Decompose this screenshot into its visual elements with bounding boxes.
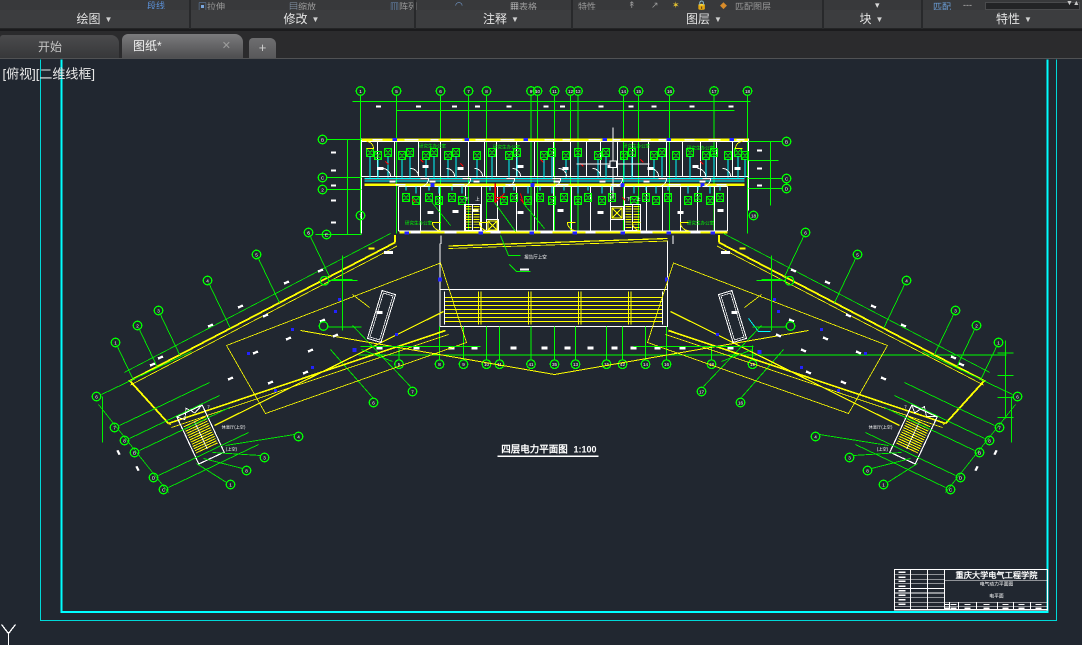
svg-text:休息厅(上空): 休息厅(上空) [869,424,893,431]
svg-text:13: 13 [575,89,581,94]
svg-text:8: 8 [988,438,991,443]
svg-text:6: 6 [439,89,442,94]
svg-text:15: 15 [636,89,642,94]
svg-text:1: 1 [229,482,232,487]
svg-text:E: E [325,232,328,237]
svg-text:4: 4 [206,278,209,283]
svg-text:(上空): (上空) [877,446,889,452]
svg-text:6: 6 [95,394,98,399]
svg-text:B: B [785,139,788,144]
svg-text:2: 2 [136,323,139,328]
svg-text:1: 1 [114,340,117,345]
svg-text:1: 1 [882,482,885,487]
svg-text:17: 17 [699,389,705,394]
svg-text:11: 11 [552,89,557,94]
svg-text:14: 14 [621,89,627,94]
svg-text:35: 35 [552,362,558,367]
svg-text:4: 4 [905,278,908,283]
svg-text:12: 12 [568,89,574,94]
svg-text:2: 2 [975,323,978,328]
svg-text:8: 8 [485,89,488,94]
svg-text:3: 3 [954,308,957,313]
svg-text:13: 13 [573,362,579,367]
svg-text:8: 8 [438,362,441,367]
svg-text:9: 9 [530,89,533,94]
svg-text:8: 8 [245,468,248,473]
svg-text:17: 17 [711,89,717,94]
svg-text:1: 1 [997,340,1000,345]
svg-text:报告厅上空: 报告厅上空 [524,254,547,261]
svg-text:6: 6 [372,400,375,405]
svg-text:3: 3 [848,455,851,460]
svg-text:研究生办公室: 研究生办公室 [687,145,714,152]
svg-text:16: 16 [667,89,673,94]
svg-text:电平面: 电平面 [989,593,1004,600]
svg-text:3: 3 [263,455,266,460]
svg-text:B: B [321,137,324,142]
svg-text:10: 10 [535,89,541,94]
svg-text:7: 7 [411,389,414,394]
svg-text:3: 3 [157,308,160,313]
svg-text:电气动力平面图: 电气动力平面图 [980,581,1014,588]
svg-text:研究生办公室: 研究生办公室 [419,143,446,150]
svg-text:上: 上 [636,196,641,202]
svg-text:8: 8 [866,468,869,473]
svg-text:16: 16 [664,362,670,367]
svg-text:41: 41 [528,362,534,367]
svg-text:5: 5 [395,89,398,94]
svg-text:7: 7 [467,89,470,94]
svg-text:2: 2 [321,187,324,192]
svg-text:18: 18 [745,89,751,94]
svg-text:1:100: 1:100 [574,445,597,455]
svg-text:5: 5 [856,252,859,257]
svg-text:1: 1 [359,89,362,94]
svg-text:研究生办公室: 研究生办公室 [493,144,520,151]
svg-text:16: 16 [738,400,744,405]
svg-text:14: 14 [643,362,649,367]
svg-text:6: 6 [804,230,807,235]
svg-text:18: 18 [751,213,757,218]
svg-text:(上空): (上空) [226,446,238,452]
svg-text:研究生办公室: 研究生办公室 [623,143,650,150]
svg-text:9: 9 [462,362,465,367]
svg-text:研究生办公室: 研究生办公室 [405,220,432,227]
svg-text:6: 6 [1016,394,1019,399]
svg-text:4: 4 [297,434,300,439]
svg-text:7: 7 [359,213,362,218]
svg-text:休息厅(上空): 休息厅(上空) [222,424,246,431]
svg-text:[俯视][二维线框]: [俯视][二维线框] [3,67,95,82]
svg-text:6: 6 [307,230,310,235]
svg-text:研究生办公室: 研究生办公室 [687,220,714,227]
svg-text:4: 4 [814,434,817,439]
svg-text:5: 5 [255,252,258,257]
svg-text:上: 上 [475,196,480,202]
svg-text:四层电力平面图: 四层电力平面图 [501,444,568,456]
svg-text:重庆大学电气工程学院: 重庆大学电气工程学院 [956,570,1039,580]
